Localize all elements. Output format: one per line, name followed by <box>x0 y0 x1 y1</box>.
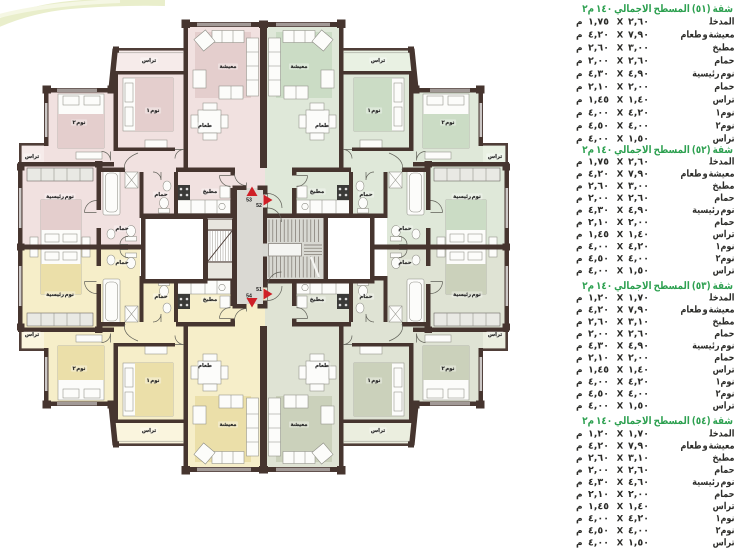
svg-text:54: 54 <box>246 294 252 300</box>
svg-text:51: 51 <box>256 287 262 293</box>
svg-text:53: 53 <box>246 198 252 204</box>
svg-text:52: 52 <box>256 203 262 209</box>
